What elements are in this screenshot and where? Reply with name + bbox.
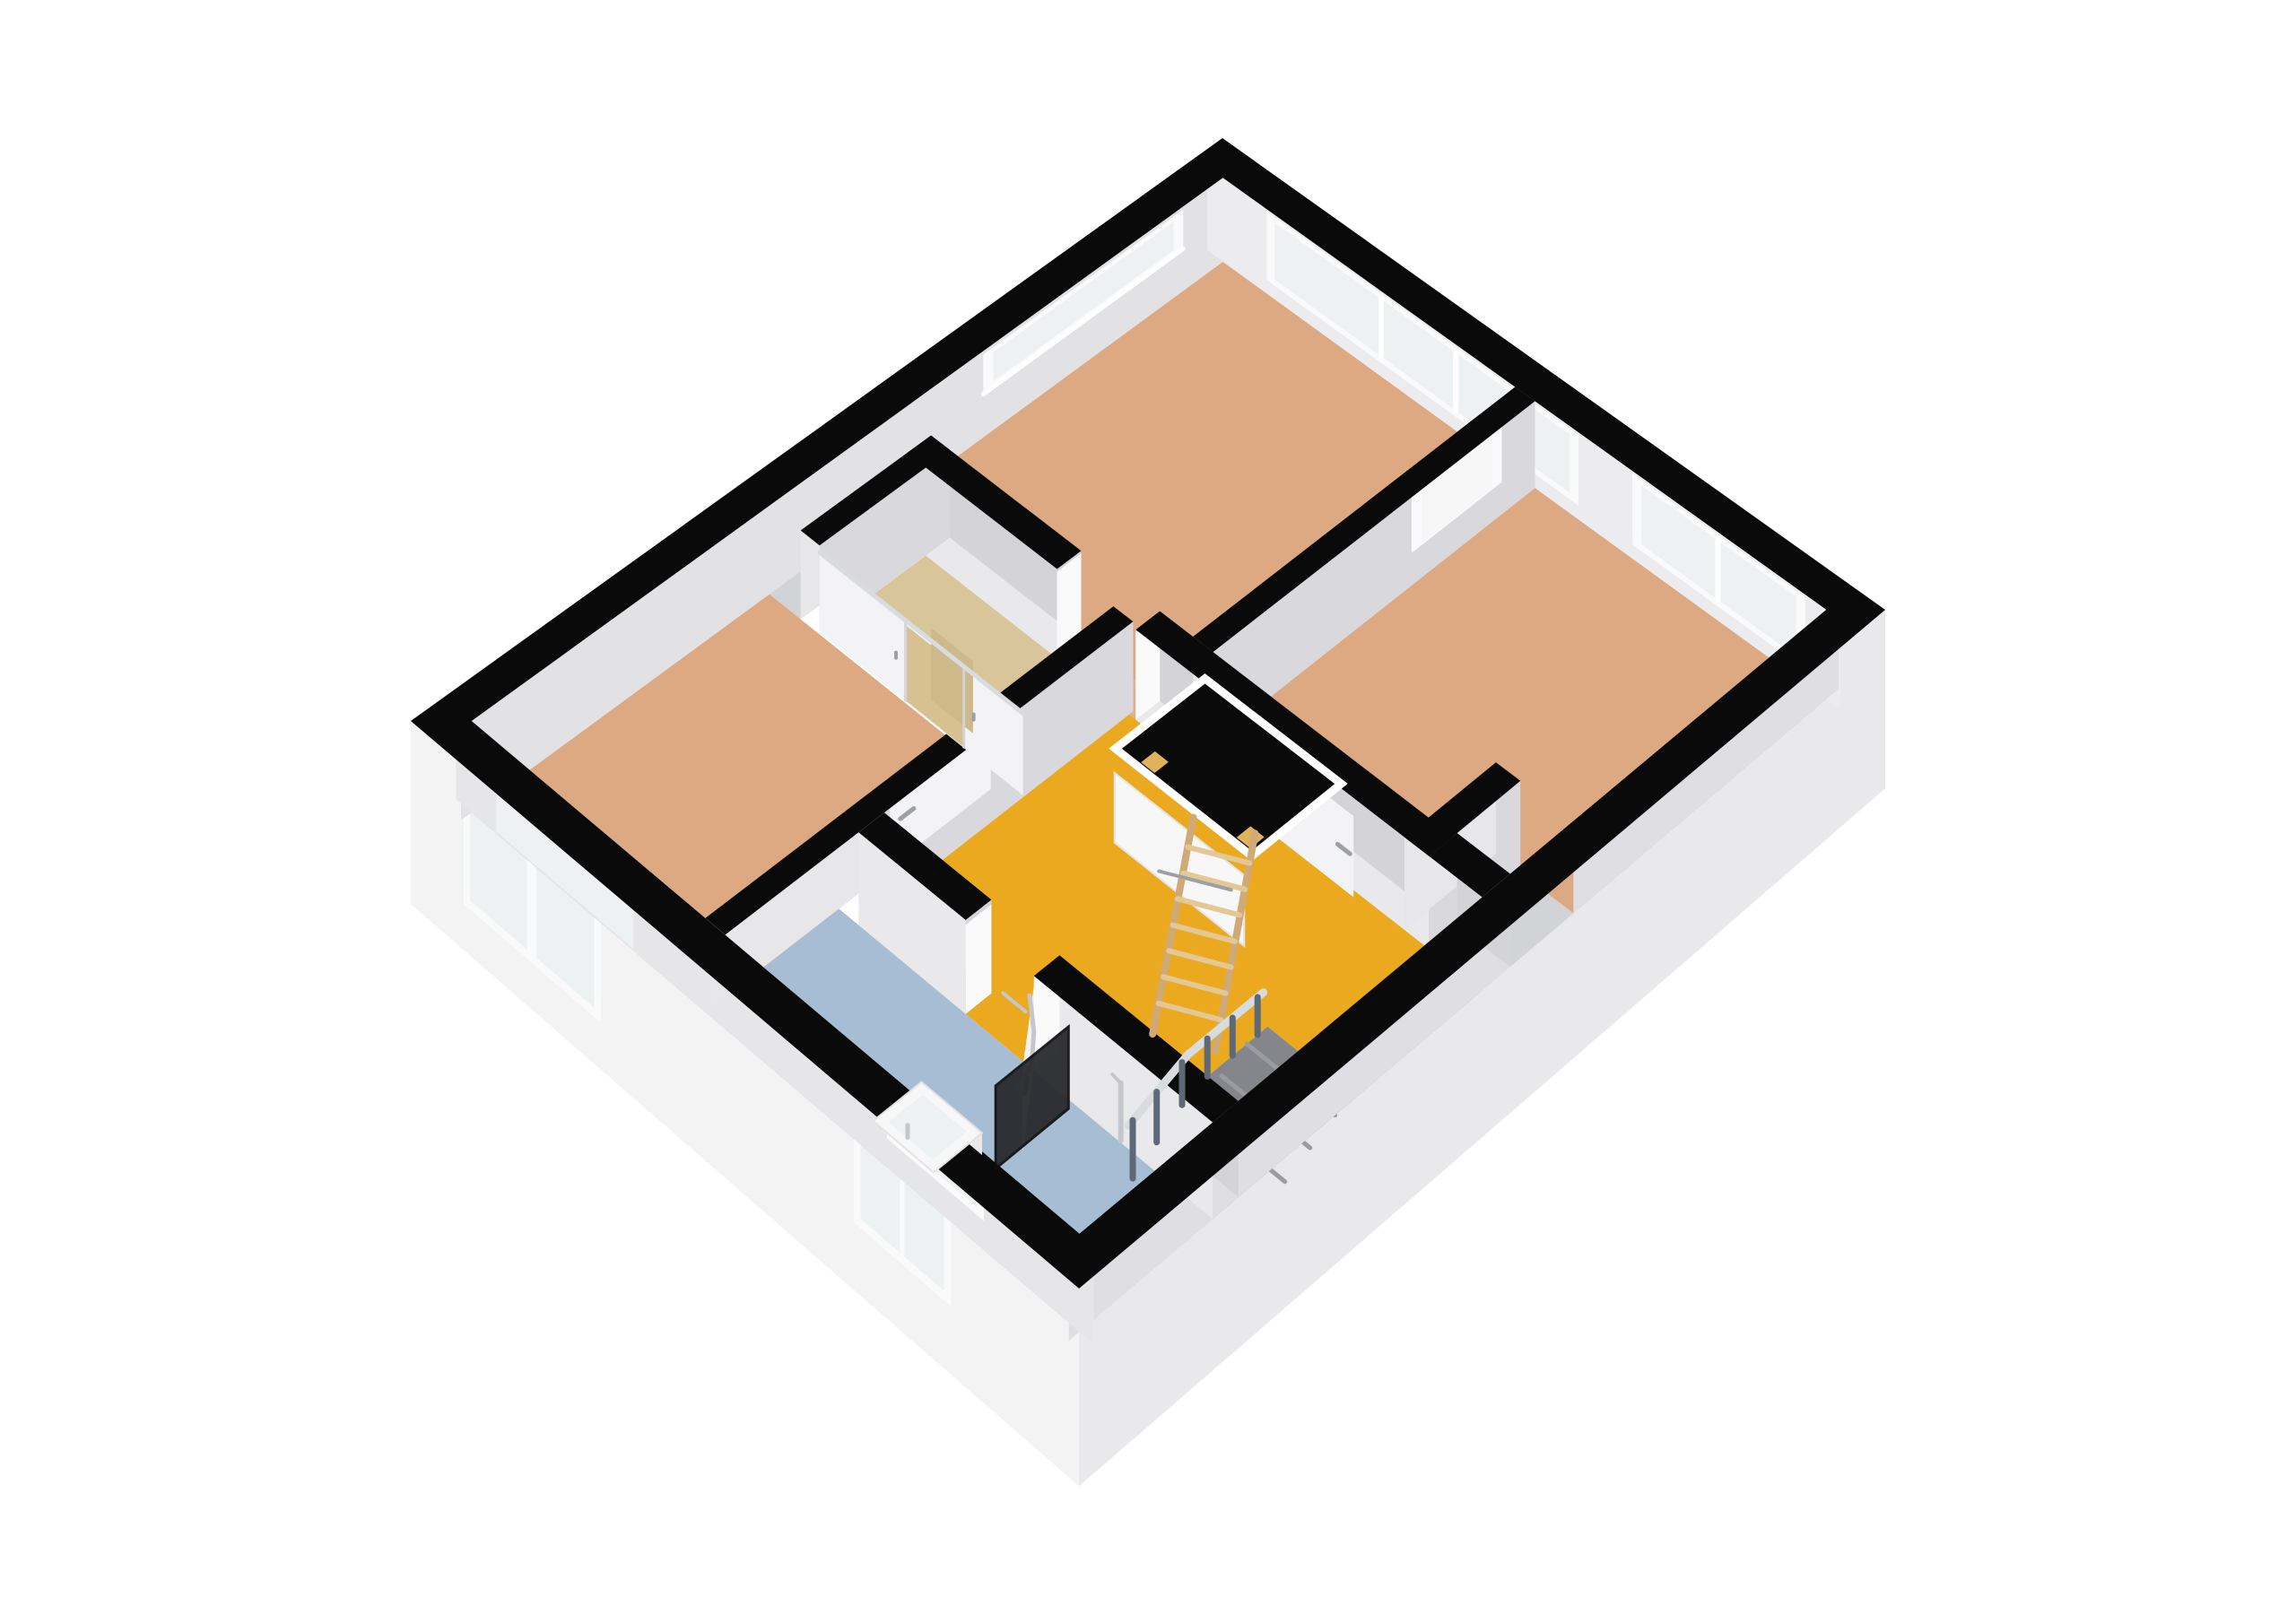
floor-plan-canvas [0,0,2296,1624]
floor-plan-3d-render [0,0,2296,1624]
